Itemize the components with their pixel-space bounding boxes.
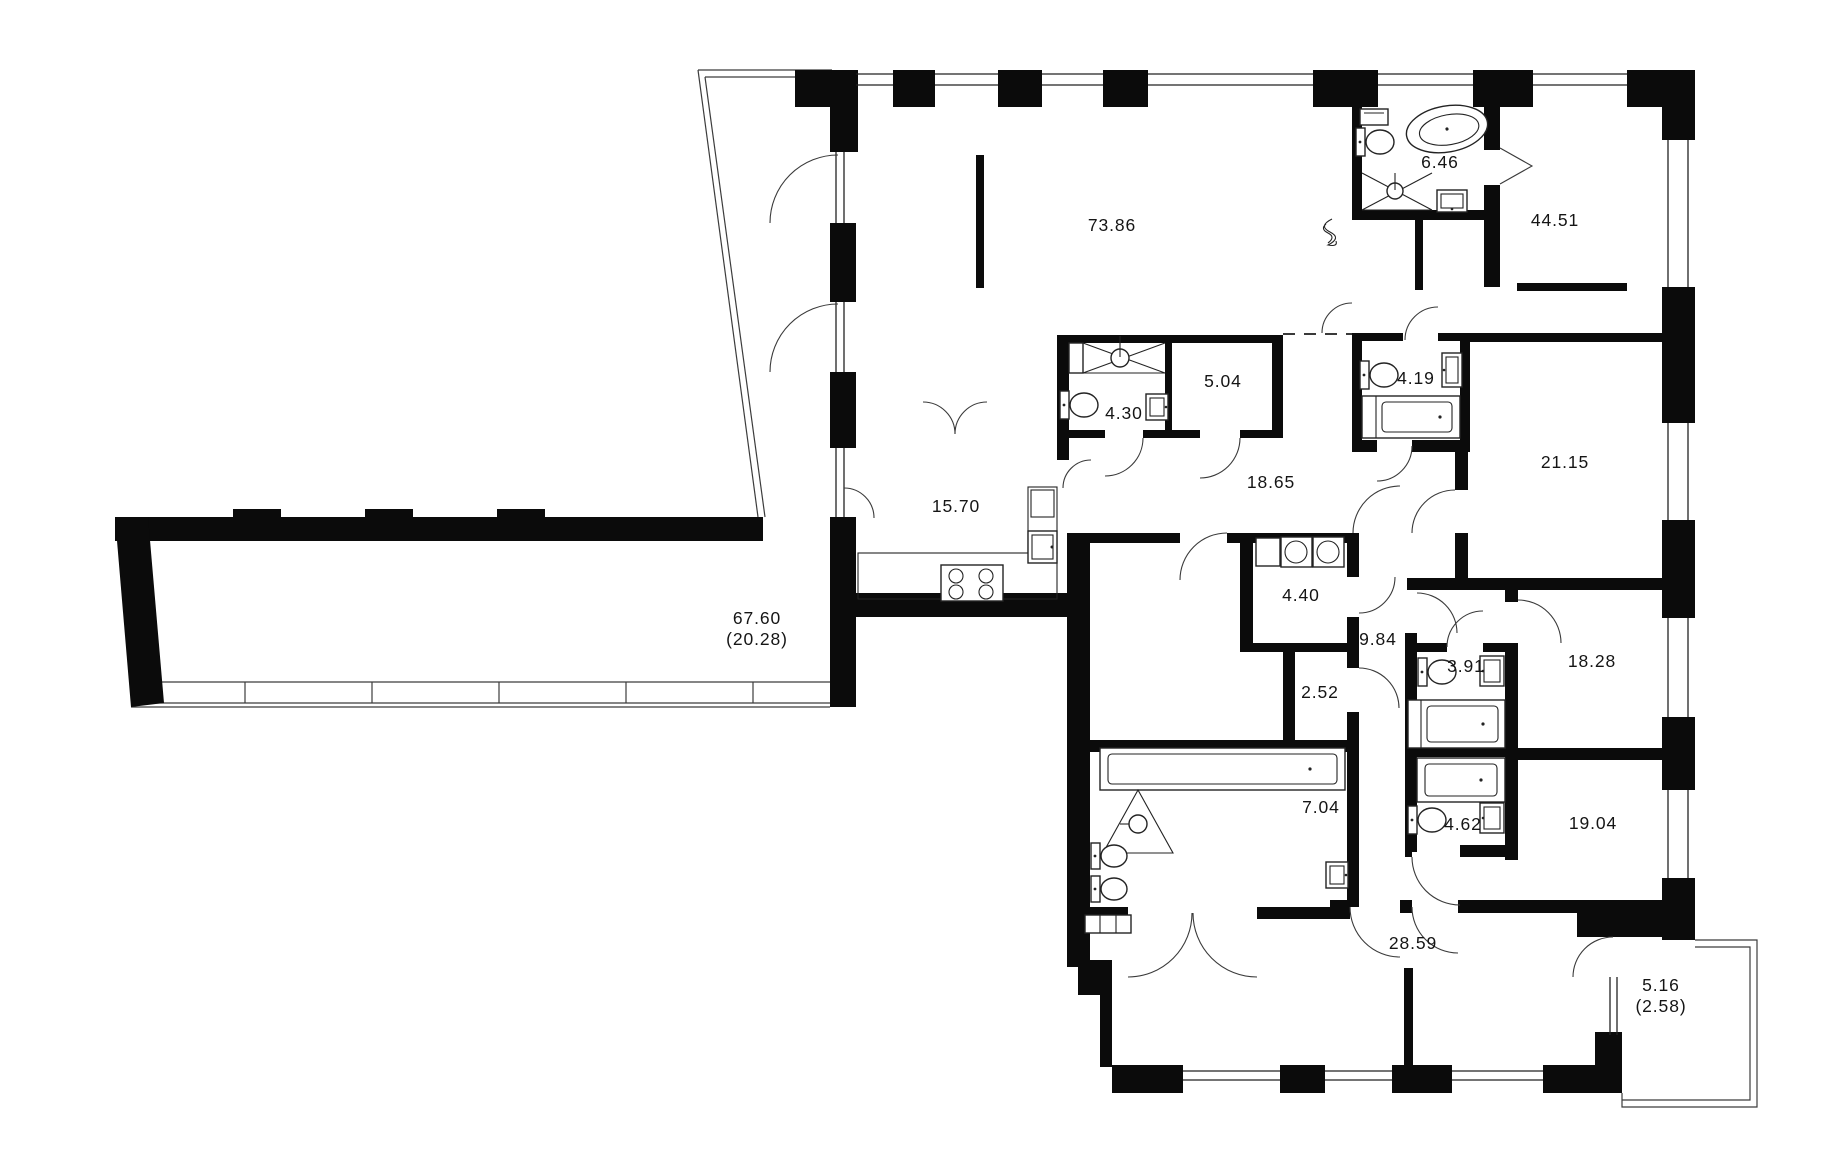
floor-plan: 73.866.4644.514.305.044.1915.7018.6567.6… bbox=[0, 0, 1830, 1174]
bathtub-icon bbox=[1362, 396, 1460, 438]
room-label-hallway: 18.65 bbox=[1247, 472, 1295, 492]
room-label-shower-room: 4.30 bbox=[1105, 403, 1143, 423]
balcony-outline bbox=[1622, 940, 1757, 1107]
shower-icon bbox=[1103, 790, 1173, 853]
room-label-bedroom-se1: 18.28 bbox=[1568, 651, 1616, 671]
room-label-bathroom-704: 7.04 bbox=[1302, 797, 1340, 817]
towel-radiator-icon bbox=[1323, 219, 1336, 246]
room-label-bathroom-391: 3.91 bbox=[1447, 656, 1485, 676]
toilet-icon bbox=[1060, 391, 1098, 419]
room-label-closet: 2.52 bbox=[1301, 682, 1339, 702]
room-label-corridor: 9.84 bbox=[1359, 629, 1397, 649]
sink-icon bbox=[1437, 190, 1467, 212]
toilet-icon bbox=[1091, 843, 1127, 869]
furniture-bar bbox=[1517, 283, 1627, 291]
room-label-bathroom-top: 6.46 bbox=[1421, 152, 1459, 172]
wardrobe-divider bbox=[1404, 968, 1413, 1067]
room-label-bathroom-462: 4.62 bbox=[1444, 814, 1482, 834]
railing bbox=[131, 682, 830, 707]
room-label-balcony: 5.16 bbox=[1642, 975, 1680, 995]
room-label-bedroom-se2: 19.04 bbox=[1569, 813, 1617, 833]
cabinet bbox=[1360, 109, 1388, 125]
toilet-icon bbox=[1360, 361, 1398, 389]
floor-plan-svg: 73.866.4644.514.305.044.1915.7018.6567.6… bbox=[0, 0, 1830, 1174]
terrace-outline bbox=[698, 70, 832, 517]
washer-icon bbox=[1256, 537, 1344, 567]
room-label-bedroom-e: 21.15 bbox=[1541, 452, 1589, 472]
stove-icon bbox=[941, 565, 1003, 601]
sink-icon bbox=[1480, 803, 1504, 833]
washer-icon bbox=[1085, 915, 1131, 933]
room-label-secondary-terrace: (20.28) bbox=[726, 629, 788, 649]
sink-icon bbox=[1146, 394, 1168, 420]
fixtures bbox=[858, 99, 1505, 933]
partition-bar bbox=[976, 155, 984, 288]
room-label-terrace: 67.60 bbox=[733, 608, 781, 628]
bathtub-icon bbox=[1408, 700, 1505, 748]
sink-icon bbox=[1442, 353, 1462, 387]
toilet-icon bbox=[1356, 128, 1394, 156]
sink-icon bbox=[1028, 531, 1057, 563]
oval-bathtub-icon bbox=[1403, 99, 1492, 159]
toilet-icon bbox=[1408, 806, 1446, 834]
room-label-storage: 5.04 bbox=[1204, 371, 1242, 391]
room-label-hall-lower: 28.59 bbox=[1389, 933, 1437, 953]
toilet-icon bbox=[1091, 876, 1127, 902]
room-label-bathroom-419: 4.19 bbox=[1397, 368, 1435, 388]
shower-icon bbox=[1362, 173, 1432, 210]
splayed-opening bbox=[1500, 148, 1532, 184]
room-label-secondary-balcony: (2.58) bbox=[1635, 996, 1686, 1016]
bathtub-icon bbox=[1417, 758, 1505, 802]
sink-icon bbox=[1326, 862, 1348, 888]
walls bbox=[115, 70, 1695, 1093]
room-label-living-room: 73.86 bbox=[1088, 215, 1136, 235]
room-label-bedroom-ne: 44.51 bbox=[1531, 210, 1579, 230]
bathtub-icon bbox=[1100, 748, 1345, 790]
room-label-kitchen: 15.70 bbox=[932, 496, 980, 516]
room-label-laundry: 4.40 bbox=[1282, 585, 1320, 605]
